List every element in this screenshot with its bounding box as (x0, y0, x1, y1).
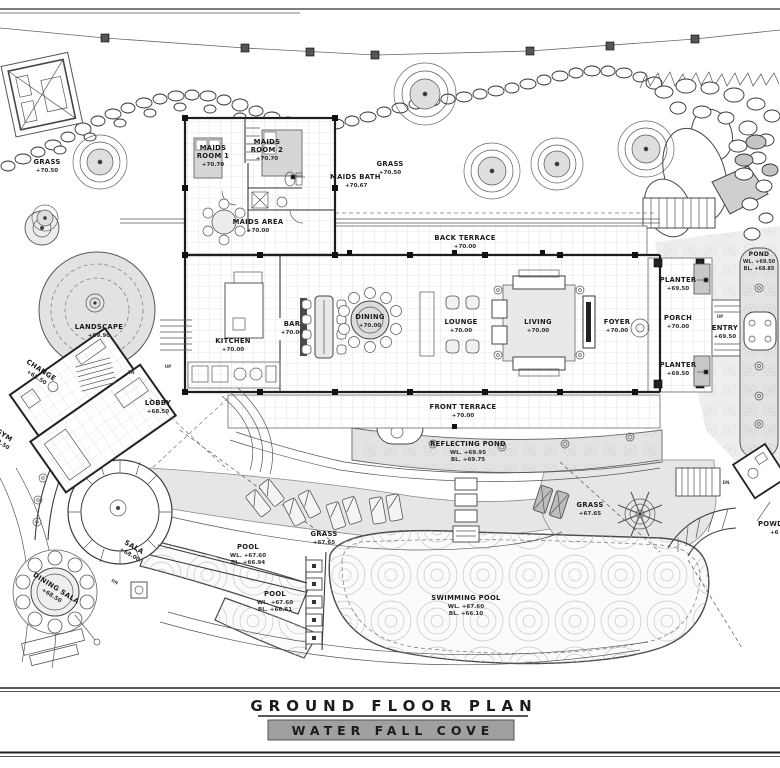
label-maids-room-1-l1: MAIDS (200, 144, 227, 152)
label-bar-level: +70.00 (281, 330, 303, 336)
label-reflecting-pond-wl: WL. +69.95 (450, 450, 486, 456)
annotation-dn-lobby: DN (128, 370, 135, 375)
pools (140, 531, 709, 664)
floor-plan-drawing: GRASS +70.50 MAIDS ROOM 1 +70.70 MAIDS R… (0, 0, 780, 768)
label-pond-name: POND (749, 251, 770, 258)
label-entry-level: +69.50 (714, 334, 736, 340)
label-maids-room-1-level: +70.70 (202, 162, 224, 168)
label-pool-lower-bl: BL. +66.61 (258, 607, 292, 613)
floor-plan-sheet: GRASS +70.50 MAIDS ROOM 1 +70.70 MAIDS R… (0, 0, 780, 768)
label-foyer-name: FOYER (604, 318, 631, 326)
label-pool-upper-name: POOL (237, 543, 259, 551)
label-powder-level: +6 (770, 530, 779, 536)
label-grass-e-level: +67.65 (579, 511, 601, 517)
label-planter-n-name: PLANTER (660, 276, 697, 284)
label-planter-s-name: PLANTER (660, 361, 697, 369)
label-porch-level: +70.00 (667, 324, 689, 330)
label-grass-nw-level: +70.50 (36, 168, 58, 174)
gate-pavilion (1, 52, 82, 137)
waterfall-rocks (635, 72, 780, 244)
dining-sala-structure (13, 550, 100, 666)
label-entry-name: ENTRY (712, 324, 738, 332)
label-grass-w-level: +67.65 (313, 540, 335, 546)
trees (32, 63, 674, 231)
label-foyer-level: +70.00 (606, 328, 628, 334)
annotation-up-lobby: UP (165, 364, 171, 369)
label-bar-name: BAR (284, 320, 301, 328)
label-maids-area-name: MAIDS AREA (233, 218, 284, 226)
label-living-name: LIVING (524, 318, 552, 326)
label-living-level: +70.00 (527, 328, 549, 334)
label-grass-n-level: +70.50 (379, 170, 401, 176)
label-reflecting-pond-bl: BL. +69.75 (451, 457, 485, 463)
plan-subtitle: WATER FALL COVE (292, 723, 495, 738)
label-swimming-pool-bl: BL. +66.10 (449, 611, 483, 617)
label-grass-e-name: GRASS (576, 501, 603, 509)
label-landscape-name: LANDSCAPE (75, 323, 123, 331)
label-pool-upper-bl: BL. +66.94 (231, 560, 265, 566)
label-maids-bath-name: MAIDS BATH (330, 173, 381, 181)
label-kitchen-name: KITCHEN (215, 337, 251, 345)
label-pond-wl: WL. +69.50 (743, 259, 776, 265)
label-maids-room-1-l2: ROOM 1 (197, 152, 229, 160)
label-maids-room-2-level: +70.70 (256, 156, 278, 162)
label-dining-name: DINING (355, 313, 385, 321)
label-grass-n-name: GRASS (376, 160, 403, 168)
label-swimming-pool-wl: WL. +67.60 (448, 604, 484, 610)
label-pool-lower-wl: WL. +67.60 (257, 600, 293, 606)
label-landscape-level: +69.90 (88, 333, 110, 339)
label-pool-upper-wl: WL. +67.60 (230, 553, 266, 559)
label-back-terrace-level: +70.00 (454, 244, 476, 250)
annotation-dn-stair: DN (723, 480, 730, 485)
label-lobby-name: LOBBY (145, 399, 171, 407)
label-front-terrace-name: FRONT TERRACE (430, 403, 497, 411)
label-maids-area-level: +70.00 (247, 228, 269, 234)
label-planter-s-level: +69.50 (667, 371, 689, 377)
label-maids-room-2-l2: ROOM 2 (251, 146, 283, 154)
label-front-terrace-level: +70.00 (452, 413, 474, 419)
label-grass-nw-name: GRASS (33, 158, 60, 166)
title-block: GROUND FLOOR PLAN WATER FALL COVE (250, 697, 537, 740)
label-grass-w-name: GRASS (310, 530, 337, 538)
label-lounge-name: LOUNGE (444, 318, 477, 326)
label-pond-bl: BL. +68.85 (744, 266, 775, 272)
label-maids-room-2-l1: MAIDS (254, 138, 281, 146)
label-kitchen-level: +70.00 (222, 347, 244, 353)
plan-title: GROUND FLOOR PLAN (250, 697, 537, 715)
entry-pond (740, 248, 778, 458)
label-lobby-level: +68.50 (147, 409, 169, 415)
label-planter-n-level: +69.50 (667, 286, 689, 292)
label-maids-bath-level: +70.67 (345, 183, 367, 189)
label-pool-lower-name: POOL (264, 590, 286, 598)
annotation-dn-sala: DN (110, 578, 119, 586)
label-lounge-level: +70.00 (450, 328, 472, 334)
label-powder-name: POWDER (758, 520, 780, 528)
label-swimming-pool-name: SWIMMING POOL (431, 594, 501, 602)
label-back-terrace-name: BACK TERRACE (434, 234, 495, 242)
annotation-up-entry: UP (717, 314, 723, 319)
label-reflecting-pond-name: REFLECTING POND (430, 440, 506, 448)
label-dining-level: +70.00 (359, 323, 381, 329)
label-porch-name: PORCH (664, 314, 692, 322)
